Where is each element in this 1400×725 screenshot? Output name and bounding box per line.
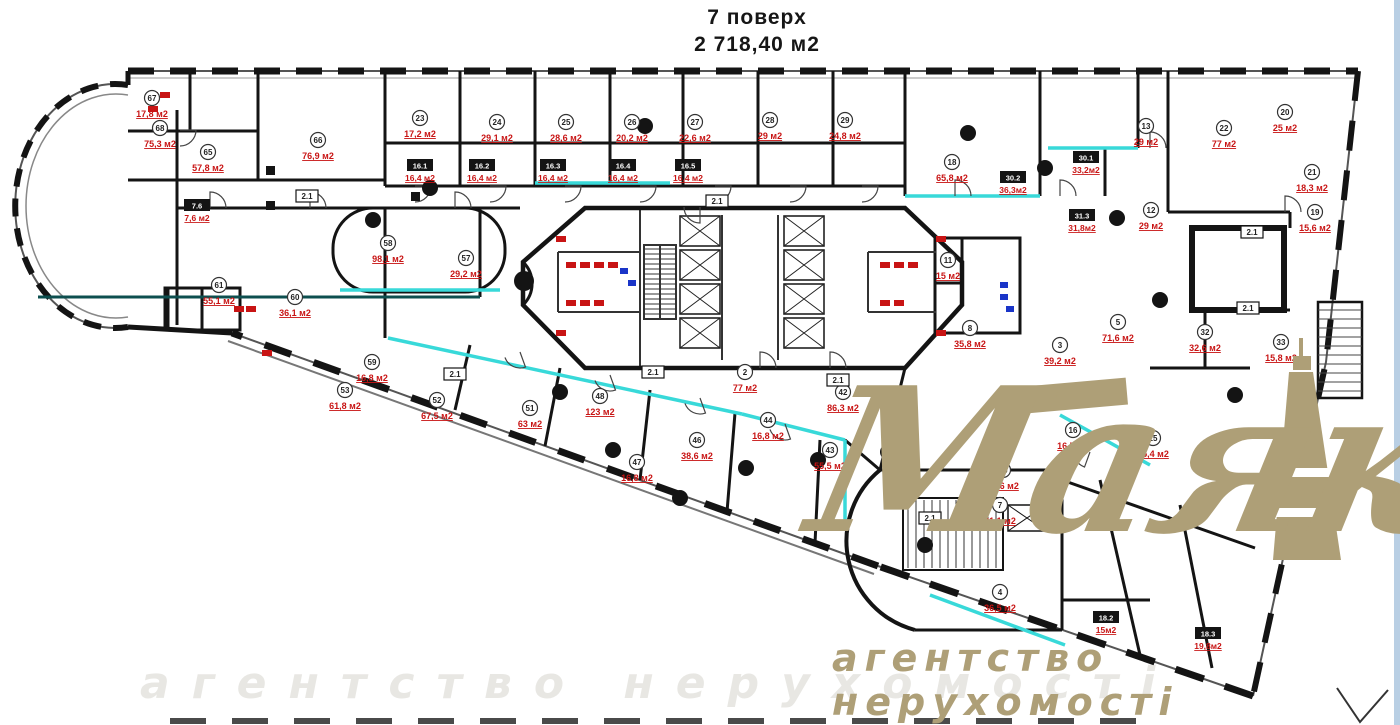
room-label: 835,8 м2 (954, 321, 986, 350)
fixture-red (608, 262, 618, 268)
room-area: 76,9 м2 (302, 151, 334, 161)
column-dot (917, 537, 933, 553)
fixture-layer (148, 92, 1014, 356)
fixture-red (234, 306, 244, 312)
room-number: 22 (1220, 124, 1229, 133)
room-number: 19 (1311, 208, 1320, 217)
stair2-treads (908, 500, 996, 568)
room-number: 11 (944, 256, 953, 265)
room-label: 339,2 м2 (1044, 338, 1076, 367)
room-area: 18,3 м2 (1296, 183, 1328, 193)
corridor-tag-text: 2.1 (647, 368, 659, 377)
room-label: 2025 м2 (1273, 105, 1297, 134)
room-area: 36,5 м2 (984, 603, 1016, 613)
room-number: 52 (433, 396, 442, 405)
room-area: 16,8 м2 (356, 373, 388, 383)
tag-room-label: 30.133,2м2 (1072, 151, 1100, 175)
room-label: 2317,2 м2 (404, 111, 436, 140)
door-swing (565, 186, 581, 202)
room-label: 5163 м2 (518, 401, 542, 430)
tag-area: 16,4 м2 (467, 173, 497, 183)
room-label: 3315,8 м2 (1265, 335, 1297, 364)
tag-text: 18.3 (1201, 630, 1216, 639)
room-label: 4286,3 м2 (827, 385, 859, 414)
tag-area: 7,6 м2 (184, 213, 209, 223)
plan-title-block: 7 поверх 2 718,40 м2 (357, 6, 1157, 57)
room-area: 32,6 м2 (1189, 343, 1221, 353)
room-label: 2429,1 м2 (481, 115, 513, 144)
room-label: 6676,9 м2 (302, 133, 334, 162)
door-swing (790, 186, 806, 202)
room-number: 13 (1142, 122, 1151, 131)
room-area: 55,4 м2 (1137, 449, 1169, 459)
room-label: 2277 м2 (1212, 121, 1236, 150)
tag-text: 30.1 (1079, 154, 1094, 163)
corridor-tag-text: 2.1 (1246, 228, 1258, 237)
room-number: 12 (1147, 206, 1156, 215)
room-number: 66 (314, 136, 323, 145)
corridor-tag-text: 2.1 (1242, 304, 1254, 313)
elevator-x (680, 250, 720, 280)
room-number: 61 (215, 281, 224, 290)
room-label: 2528,6 м2 (550, 115, 582, 144)
room-area: 86,3 м2 (827, 403, 859, 413)
floor-plan-page: 6717,8 м26875,3 м26557,8 м26676,9 м22317… (0, 0, 1400, 725)
room-label: 721,1 м2 (984, 498, 1016, 527)
elevator-shaft (784, 318, 824, 348)
room-area: 36,1 м2 (279, 308, 311, 318)
room-label: 2555,4 м2 (1137, 431, 1169, 460)
column-dot (1109, 210, 1125, 226)
room-number: 20 (1281, 108, 1290, 117)
room-label: 4716,8 м2 (621, 455, 653, 484)
door-swing (760, 352, 776, 368)
corridor-tag-text: 2.1 (924, 514, 936, 523)
column-dot (365, 212, 381, 228)
tag-room-label: 18.215м2 (1093, 611, 1119, 635)
room-area: 67,5 м2 (421, 411, 453, 421)
room-area: 55,1 м2 (203, 296, 235, 306)
column-dot (1042, 472, 1058, 488)
corridor-tag: 2.1 (1237, 302, 1259, 314)
corridor-tag: 2.1 (706, 195, 728, 207)
room-label: 6036,1 м2 (279, 290, 311, 319)
door-swing (455, 192, 471, 208)
room-label: 4638,6 м2 (681, 433, 713, 462)
room-label: 1915,6 м2 (1299, 205, 1331, 234)
column-square (266, 166, 275, 175)
room-number: 4 (998, 588, 1003, 597)
room-label: 48123 м2 (585, 389, 614, 418)
room-number: 67 (148, 94, 157, 103)
lighthouse-tower (1273, 372, 1341, 560)
fixture-red (160, 92, 170, 98)
fixture-red (594, 300, 604, 306)
room-area: 28,6 м2 (550, 133, 582, 143)
room-number: 27 (691, 118, 700, 127)
room-area: 22,6 м2 (679, 133, 711, 143)
room-label: 3232,6 м2 (1189, 325, 1221, 354)
tag-room-label: 18.319,8м2 (1194, 627, 1222, 651)
room-number: 58 (384, 239, 393, 248)
column-dot (672, 490, 688, 506)
core (514, 208, 962, 368)
fixture-red (936, 330, 946, 336)
right-edge-strip (1394, 0, 1400, 725)
room-area: 75,3 м2 (144, 139, 176, 149)
room-area: 39,2 м2 (1044, 356, 1076, 366)
corridor-tag: 2.1 (827, 374, 849, 386)
fixture-blue (628, 280, 636, 286)
tag-text: 16.4 (616, 162, 631, 171)
corridor-tag-text: 2.1 (711, 197, 723, 206)
room-area: 61,8 м2 (329, 401, 361, 411)
column-dot (1227, 387, 1243, 403)
lighthouse-band (1278, 468, 1336, 477)
lighthouse-lamp (1293, 356, 1311, 370)
room-area: 24,8 м2 (829, 131, 861, 141)
room-number: 60 (291, 293, 300, 302)
elevator-shafts (680, 216, 824, 348)
fixture-red (262, 350, 272, 356)
door-swing (490, 186, 506, 202)
room-area: 77 м2 (1212, 139, 1236, 149)
room-number: 68 (156, 124, 165, 133)
room-number: 65 (204, 148, 213, 157)
room-number: 57 (462, 254, 471, 263)
fixture-blue (1006, 306, 1014, 312)
room-number: 21 (1308, 168, 1317, 177)
tag-room-label: 16.516,4 м2 (673, 159, 703, 183)
elevator-shaft (784, 216, 824, 246)
corridor-tag: 2.1 (444, 368, 466, 380)
room-area: 16,7 м2 (1057, 441, 1089, 451)
room-area: 20,2 м2 (616, 133, 648, 143)
tag-area: 36,3м2 (999, 185, 1027, 195)
tag-room-label: 16.316,4 м2 (538, 159, 568, 183)
tag-room-label: 16.116,4 м2 (405, 159, 435, 183)
room-label: 6875,3 м2 (144, 121, 176, 150)
room-number: 51 (526, 404, 535, 413)
corridor-tag-text: 2.1 (832, 376, 844, 385)
room-area: 16,8 м2 (752, 431, 784, 441)
room-number: 32 (1201, 328, 1210, 337)
room-number: 33 (1277, 338, 1286, 347)
fixture-red (580, 300, 590, 306)
tag-area: 31,8м2 (1068, 223, 1096, 233)
column-dot (738, 460, 754, 476)
room-number: 8 (968, 324, 973, 333)
door-swing (1060, 180, 1076, 196)
tag-text: 18.2 (1099, 614, 1114, 623)
room-label: 2829 м2 (758, 113, 782, 142)
room-label: 1229 м2 (1139, 203, 1163, 232)
elevator-shaft (680, 250, 720, 280)
elevator-x (784, 250, 824, 280)
room-area: 17,2 м2 (404, 129, 436, 139)
tag-room-label: 7.67,6 м2 (184, 199, 210, 223)
elevator-x (784, 318, 824, 348)
room-number: 23 (416, 114, 425, 123)
fixture-red (556, 236, 566, 242)
corridor-tag: 2.1 (919, 512, 941, 524)
elevator-shaft (784, 284, 824, 314)
elevator-x (680, 318, 720, 348)
room-area: 38,6 м2 (681, 451, 713, 461)
lighthouse-band (1275, 508, 1339, 517)
tag-text: 16.3 (546, 162, 561, 171)
room-area: 63 м2 (518, 419, 542, 429)
tag-room-label: 16.416,4 м2 (608, 159, 638, 183)
column-square (411, 192, 420, 201)
door-swing (640, 186, 656, 202)
interior-walls-light (558, 208, 936, 368)
external-stair (1318, 302, 1362, 398)
room-area: 29 м2 (1134, 137, 1158, 147)
room-number: 7 (998, 501, 1003, 510)
elevator-shaft (680, 318, 720, 348)
room-number: 3 (1058, 341, 1063, 350)
tag-text: 31.3 (1075, 212, 1090, 221)
room-number: 18 (948, 158, 957, 167)
room-area: 16,8 м2 (621, 473, 653, 483)
room-number: 42 (839, 388, 848, 397)
tag-text: 16.2 (475, 162, 490, 171)
fixture-red (566, 300, 576, 306)
elevator-shaft (680, 284, 720, 314)
door-swing (830, 352, 846, 368)
tag-area: 33,2м2 (1072, 165, 1100, 175)
room-area: 98,1 м2 (372, 254, 404, 264)
fixture-red (556, 330, 566, 336)
room-area: 15,8 м2 (1265, 353, 1297, 363)
room-area: 15,6 м2 (1299, 223, 1331, 233)
fixture-red (894, 300, 904, 306)
tag-area: 16,4 м2 (405, 173, 435, 183)
room-area: 71,6 м2 (1102, 333, 1134, 343)
room-area: 29,2 м2 (450, 269, 482, 279)
lighthouse-gallery (1002, 378, 1128, 416)
column-dot (1037, 160, 1053, 176)
door-swing (1285, 196, 1301, 212)
fixture-blue (1000, 282, 1008, 288)
column-square (266, 201, 275, 210)
room-area: 29,1 м2 (481, 133, 513, 143)
technical-room (1192, 228, 1284, 310)
column-dot (552, 384, 568, 400)
fixture-red (566, 262, 576, 268)
room-label: 6155,1 м2 (203, 278, 235, 307)
corridor-tag: 2.1 (296, 190, 318, 202)
fixture-red (880, 262, 890, 268)
fixture-blue (1000, 294, 1008, 300)
room-area: 36,6 м2 (987, 481, 1019, 491)
room-label: 5898,1 м2 (372, 236, 404, 265)
tag-text: 16.5 (681, 162, 696, 171)
room-number: 44 (764, 416, 773, 425)
lighthouse-icon (1002, 338, 1341, 560)
room-number: 46 (693, 436, 702, 445)
column-dot (1152, 292, 1168, 308)
room-number: 53 (341, 386, 350, 395)
fixture-red (594, 262, 604, 268)
room-number: 15 (999, 466, 1008, 475)
room-number: 59 (368, 358, 377, 367)
room-number: 29 (841, 116, 850, 125)
corridor-tag-text: 2.1 (449, 370, 461, 379)
room-number: 24 (493, 118, 502, 127)
column-dot (960, 125, 976, 141)
tag-area: 19,8м2 (1194, 641, 1222, 651)
room-number: 5 (1116, 318, 1121, 327)
column-dot (605, 442, 621, 458)
tag-text: 16.1 (413, 162, 428, 171)
room-area: 15 м2 (936, 271, 960, 281)
corridor-tag: 2.1 (642, 366, 664, 378)
room-label: 1536,6 м2 (987, 463, 1019, 492)
column-layer (266, 118, 1243, 553)
room-area: 77 м2 (733, 383, 757, 393)
tag-area: 16,4 м2 (538, 173, 568, 183)
room-number: 26 (628, 118, 637, 127)
corridor-tag-text: 2.1 (301, 192, 313, 201)
tag-area: 15м2 (1096, 625, 1117, 635)
fixture-red (580, 262, 590, 268)
room-number: 48 (596, 392, 605, 401)
floor-plan-svg: 6717,8 м26875,3 м26557,8 м26676,9 м22317… (0, 0, 1400, 725)
room-area: 29 м2 (1139, 221, 1163, 231)
room-label: 1865,8 м2 (936, 155, 968, 184)
room-area: 17,8 м2 (136, 109, 168, 119)
room-number: 16 (1069, 426, 1078, 435)
room-label: 436,5 м2 (984, 585, 1016, 614)
elevator-shaft (784, 250, 824, 280)
room-label: 6557,8 м2 (192, 145, 224, 174)
fixture-red (894, 262, 904, 268)
room-number: 43 (826, 446, 835, 455)
floor-title: 7 поверх (357, 6, 1157, 30)
room-area: 65,8 м2 (936, 173, 968, 183)
corridor-tag: 2.1 (1241, 226, 1263, 238)
room-area: 21,1 м2 (984, 516, 1016, 526)
elevator-x (784, 284, 824, 314)
room-area: 123 м2 (585, 407, 614, 417)
tag-text: 7.6 (192, 202, 202, 211)
column-dot (880, 444, 896, 460)
door-swing (505, 352, 526, 373)
room-label: 2118,3 м2 (1296, 165, 1328, 194)
room-area: 57,8 м2 (192, 163, 224, 173)
elevator-x (680, 284, 720, 314)
tag-room-label: 16.216,4 м2 (467, 159, 497, 183)
fixture-red (880, 300, 890, 306)
room-number: 28 (766, 116, 775, 125)
room-area: 55,5 м2 (814, 461, 846, 471)
room-label: 5267,5 м2 (421, 393, 453, 422)
tag-room-label: 30.236,3м2 (999, 171, 1027, 195)
fixture-red (246, 306, 256, 312)
room-label: 5729,2 м2 (450, 251, 482, 280)
room-number: 47 (633, 458, 642, 467)
fixture-red (936, 236, 946, 242)
door-swing (210, 192, 226, 208)
stair-core-2 (846, 470, 1046, 630)
tag-text: 30.2 (1006, 174, 1021, 183)
tag-area: 16,4 м2 (673, 173, 703, 183)
room-number: 2 (743, 368, 748, 377)
total-area: 2 718,40 м2 (357, 33, 1157, 57)
room-number: 25 (562, 118, 571, 127)
tag-area: 16,4 м2 (608, 173, 638, 183)
fixture-blue (620, 268, 628, 274)
room-area: 35,8 м2 (954, 339, 986, 349)
room-number: 25 (1149, 434, 1158, 443)
room-label: 5916,8 м2 (356, 355, 388, 384)
door-swing (862, 186, 878, 202)
elevator-x (784, 216, 824, 246)
room-area: 25 м2 (1273, 123, 1297, 133)
fixture-red (908, 262, 918, 268)
room-area: 29 м2 (758, 131, 782, 141)
corner-mark (1337, 688, 1388, 722)
room-label-layer: 6717,8 м26875,3 м26557,8 м26676,9 м22317… (136, 91, 1331, 614)
room-label: 571,6 м2 (1102, 315, 1134, 344)
tag-room-label: 31.331,8м2 (1068, 209, 1096, 233)
